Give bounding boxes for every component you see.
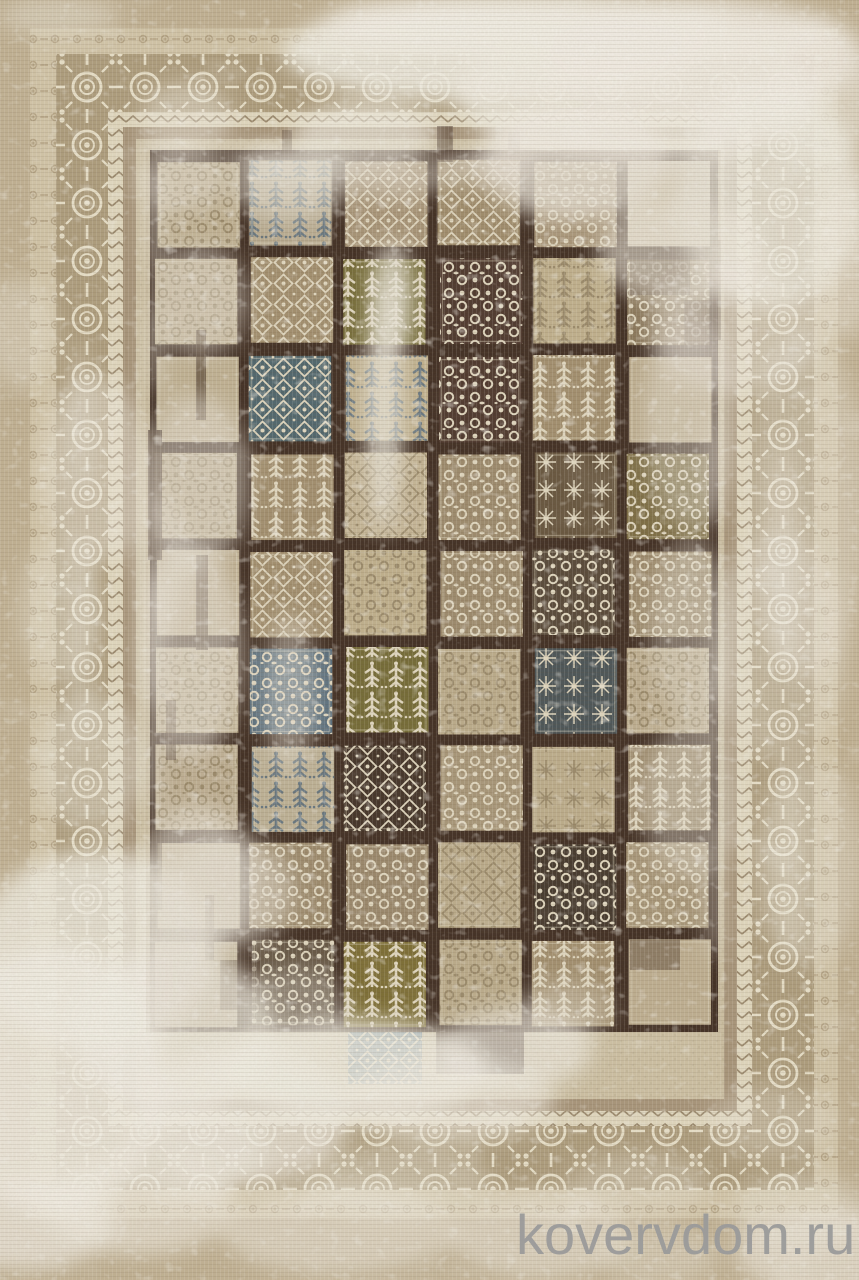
svg-text:kovervdom.ru: kovervdom.ru [516,1203,855,1266]
